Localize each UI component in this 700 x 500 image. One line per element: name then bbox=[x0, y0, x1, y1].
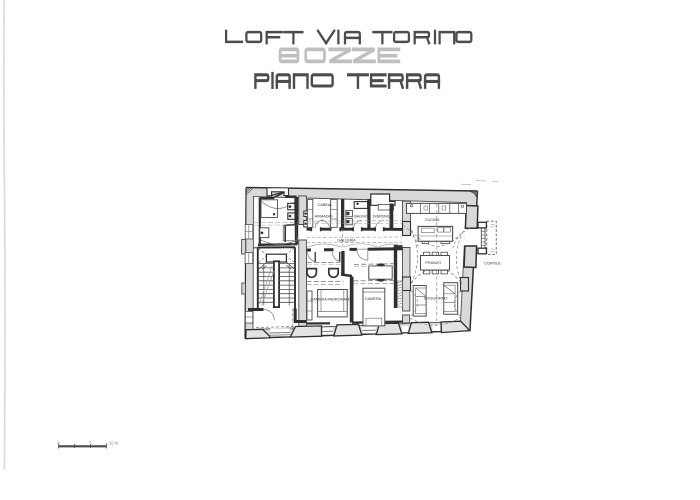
svg-text:10 m: 10 m bbox=[109, 440, 119, 445]
svg-text:GALLERIA: GALLERIA bbox=[337, 237, 356, 242]
svg-text:BAGNO: BAGNO bbox=[354, 213, 368, 218]
svg-text:PRANZO: PRANZO bbox=[425, 260, 441, 265]
svg-text:CAMERA: CAMERA bbox=[365, 296, 382, 301]
svg-text:CUCINA: CUCINA bbox=[425, 217, 440, 222]
svg-text:ARMADIO: ARMADIO bbox=[315, 213, 333, 218]
svg-text:CAMERA PADRONALE: CAMERA PADRONALE bbox=[311, 297, 351, 302]
svg-text:CORTILE: CORTILE bbox=[484, 261, 501, 266]
svg-text:CABINA: CABINA bbox=[318, 202, 332, 207]
svg-text:DISPENSA: DISPENSA bbox=[373, 213, 393, 218]
svg-text:SOGGIORNO: SOGGIORNO bbox=[424, 295, 448, 300]
